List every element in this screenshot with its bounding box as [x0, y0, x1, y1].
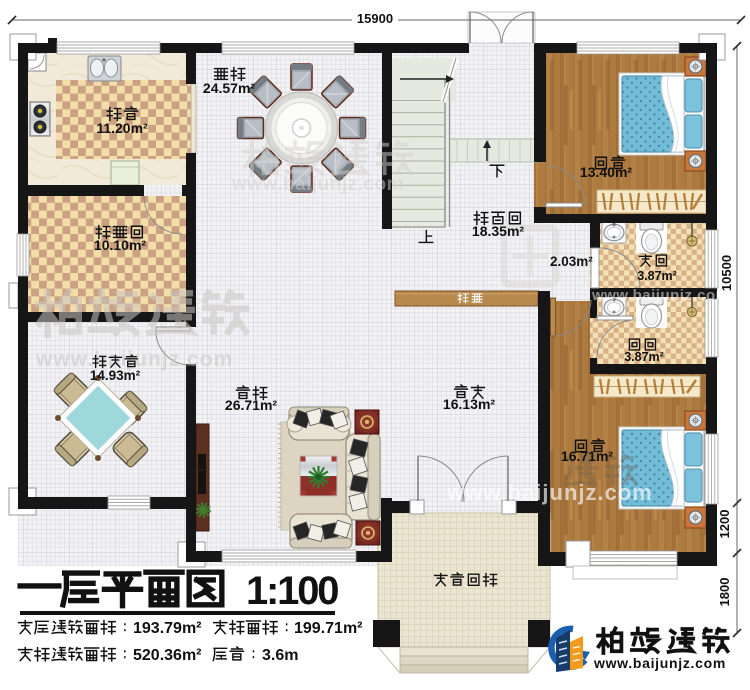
svg-text:26.71m²: 26.71m² — [225, 397, 277, 413]
svg-text:www.baijunjz.com: www.baijunjz.com — [593, 655, 726, 671]
svg-text:11.20m²: 11.20m² — [96, 120, 148, 136]
svg-text:18.35m²: 18.35m² — [472, 223, 524, 239]
svg-text:1200: 1200 — [717, 510, 732, 539]
svg-text:www.baijunjz.com: www.baijunjz.com — [231, 174, 404, 195]
svg-text:10500: 10500 — [719, 255, 734, 291]
svg-text:2.03m²: 2.03m² — [550, 254, 593, 269]
svg-text:520.36m²: 520.36m² — [133, 647, 202, 664]
svg-text:24.57m²: 24.57m² — [203, 80, 255, 96]
svg-text:14.93m²: 14.93m² — [90, 368, 141, 383]
svg-text:13.40m²: 13.40m² — [580, 164, 632, 180]
svg-text:3.87m²: 3.87m² — [624, 350, 664, 364]
svg-text:15900: 15900 — [357, 11, 393, 26]
svg-text:3.6m: 3.6m — [262, 647, 298, 664]
svg-text:16.13m²: 16.13m² — [443, 396, 495, 412]
svg-text:199.71m²: 199.71m² — [294, 620, 363, 637]
svg-text:www.baijunjz.com: www.baijunjz.com — [446, 480, 653, 505]
svg-text:www.baijunjz.com: www.baijunjz.com — [591, 287, 729, 304]
svg-text:1800: 1800 — [717, 578, 732, 607]
svg-text:3.87m²: 3.87m² — [637, 269, 677, 283]
svg-text:10.10m²: 10.10m² — [94, 237, 146, 253]
svg-text:193.79m²: 193.79m² — [133, 620, 202, 637]
svg-text:16.71m²: 16.71m² — [561, 448, 613, 464]
svg-text:1:100: 1:100 — [246, 569, 338, 613]
